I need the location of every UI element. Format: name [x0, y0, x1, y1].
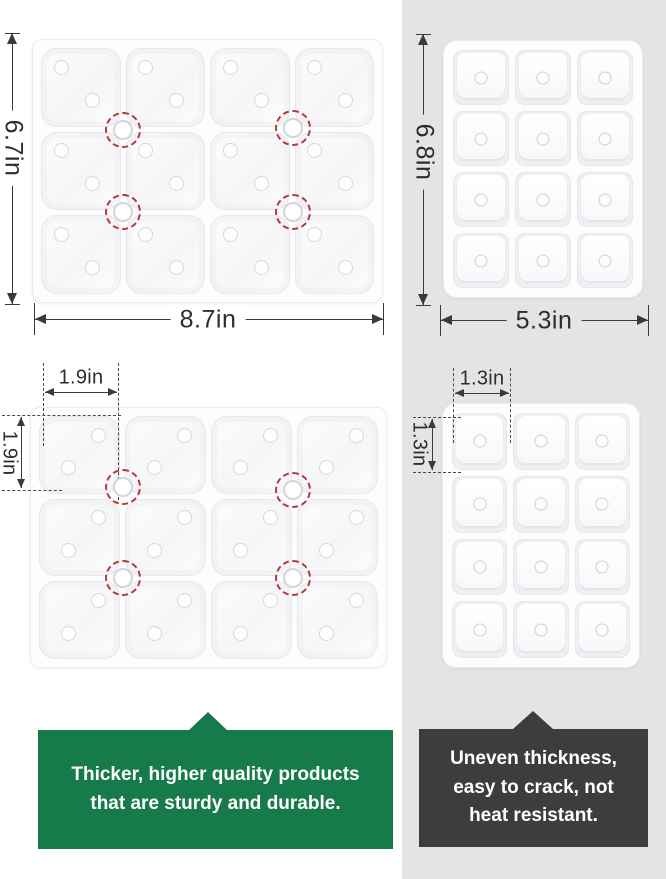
drain-hole-icon [596, 560, 609, 573]
tray-compartment [211, 581, 292, 659]
arrow-up-icon [7, 33, 17, 44]
bad-callout: Uneven thickness, easy to crack, not hea… [419, 729, 648, 847]
drain-hole-icon [254, 93, 269, 108]
tray-compartment [513, 601, 568, 658]
small-tray-bottom [442, 403, 640, 668]
small-tray-height-label: 6.8in [410, 115, 439, 190]
drain-hole-icon [599, 132, 612, 145]
drain-hole-icon [473, 560, 486, 573]
drain-hole-icon [319, 543, 334, 558]
bad-callout-text-line: easy to crack, not [453, 774, 614, 803]
drain-hole-icon [263, 593, 278, 608]
large-cell-width-label: 1.9in [59, 367, 104, 390]
drain-hole-icon [223, 143, 238, 158]
tray-compartment [513, 413, 568, 470]
small-tray-grid [442, 403, 640, 668]
drain-hole-icon [599, 71, 612, 84]
arrow-left-icon [45, 388, 54, 396]
arrow-up-icon [17, 417, 25, 426]
product-comparison-infographic: 6.7in 8.7in 6.8in 5.3in [0, 0, 666, 879]
drain-hole-icon [349, 428, 364, 443]
drain-hole-icon [54, 227, 69, 242]
drain-hole-icon [254, 176, 269, 191]
drain-hole-icon [596, 623, 609, 636]
arrow-down-icon [7, 293, 17, 304]
highlight-ring-icon [275, 560, 311, 596]
tray-compartment [577, 111, 633, 166]
tray-compartment [452, 476, 507, 533]
drain-hole-icon [319, 460, 334, 475]
drain-hole-icon [349, 593, 364, 608]
tray-compartment [453, 172, 509, 227]
tray-compartment [577, 50, 633, 105]
tray-compartment [297, 499, 378, 577]
small-tray-grid [443, 40, 643, 298]
drain-hole-icon [147, 543, 162, 558]
tray-compartment [453, 233, 509, 288]
large-tray-height-label: 6.7in [0, 111, 28, 186]
drain-hole-icon [61, 626, 76, 641]
drain-hole-icon [475, 71, 488, 84]
drain-hole-icon [307, 60, 322, 75]
tray-compartment [126, 132, 206, 211]
drain-hole-icon [473, 435, 486, 448]
drain-hole-icon [534, 498, 547, 511]
highlight-ring-icon [105, 112, 141, 148]
drain-hole-icon [307, 227, 322, 242]
drain-hole-icon [54, 60, 69, 75]
drain-hole-icon [169, 176, 184, 191]
tray-compartment [515, 172, 571, 227]
callout-pointer-icon [513, 711, 553, 729]
drain-hole-icon [54, 143, 69, 158]
good-callout-text-line: that are sturdy and durable. [90, 790, 340, 819]
drain-hole-icon [534, 623, 547, 636]
small-tray-top [443, 40, 643, 298]
tray-compartment [297, 581, 378, 659]
drain-hole-icon [223, 60, 238, 75]
drain-hole-icon [147, 460, 162, 475]
drain-hole-icon [599, 193, 612, 206]
tray-compartment [453, 111, 509, 166]
arrow-up-icon [418, 34, 428, 45]
drain-hole-icon [147, 626, 162, 641]
drain-hole-icon [85, 260, 100, 275]
arrow-right-icon [108, 388, 117, 396]
tray-compartment [126, 215, 206, 294]
drain-hole-icon [338, 176, 353, 191]
tray-compartment [575, 539, 630, 596]
highlight-ring-icon [105, 469, 141, 505]
drain-hole-icon [177, 510, 192, 525]
tray-compartment [513, 476, 568, 533]
drain-hole-icon [263, 510, 278, 525]
small-cell-width-label: 1.3in [460, 368, 505, 391]
tray-compartment [515, 233, 571, 288]
tray-compartment [210, 215, 290, 294]
tray-compartment [515, 50, 571, 105]
small-tray-width-label: 5.3in [507, 307, 582, 336]
tray-compartment [295, 48, 375, 127]
drain-hole-icon [537, 132, 550, 145]
tray-compartment [41, 215, 121, 294]
drain-hole-icon [91, 428, 106, 443]
tray-compartment [39, 499, 120, 577]
arrow-left-icon [35, 314, 46, 324]
large-tray-top [32, 39, 383, 303]
drain-hole-icon [338, 260, 353, 275]
tray-compartment [41, 48, 121, 127]
tray-compartment [295, 132, 375, 211]
drain-hole-icon [91, 510, 106, 525]
tray-compartment [452, 601, 507, 658]
drain-hole-icon [537, 71, 550, 84]
drain-hole-icon [233, 460, 248, 475]
large-tray-bottom [30, 407, 387, 668]
drain-hole-icon [596, 498, 609, 511]
good-callout: Thicker, higher quality products that ar… [38, 730, 393, 849]
tray-compartment [577, 172, 633, 227]
tray-compartment [41, 132, 121, 211]
drain-hole-icon [138, 227, 153, 242]
drain-hole-icon [91, 593, 106, 608]
small-cell-height-label: 1.3in [408, 422, 431, 467]
tray-compartment [575, 601, 630, 658]
tray-compartment [513, 539, 568, 596]
drain-hole-icon [473, 498, 486, 511]
arrow-down-icon [17, 479, 25, 488]
tray-compartment [575, 476, 630, 533]
drain-hole-icon [169, 260, 184, 275]
large-tray-grid [32, 39, 383, 303]
highlight-ring-icon [275, 194, 311, 230]
large-cell-height-label: 1.9in [0, 431, 21, 476]
tray-compartment [125, 499, 206, 577]
highlight-ring-icon [275, 472, 311, 508]
tray-compartment [125, 581, 206, 659]
good-callout-text-line: Thicker, higher quality products [71, 761, 359, 790]
tray-compartment [453, 50, 509, 105]
drain-hole-icon [338, 93, 353, 108]
drain-hole-icon [138, 60, 153, 75]
drain-hole-icon [319, 626, 334, 641]
tray-compartment [126, 48, 206, 127]
tray-compartment [575, 413, 630, 470]
drain-hole-icon [85, 93, 100, 108]
drain-hole-icon [233, 543, 248, 558]
highlight-ring-icon [105, 560, 141, 596]
bad-callout-text-line: heat resistant. [469, 802, 598, 831]
highlight-ring-icon [105, 194, 141, 230]
drain-hole-icon [475, 193, 488, 206]
tray-compartment [452, 413, 507, 470]
drain-hole-icon [138, 143, 153, 158]
drain-hole-icon [537, 193, 550, 206]
drain-hole-icon [169, 93, 184, 108]
tray-compartment [577, 233, 633, 288]
drain-hole-icon [263, 428, 278, 443]
drain-hole-icon [223, 227, 238, 242]
large-tray-grid [30, 407, 387, 668]
drain-hole-icon [349, 510, 364, 525]
drain-hole-icon [61, 543, 76, 558]
drain-hole-icon [599, 254, 612, 267]
arrow-down-icon [418, 294, 428, 305]
tray-compartment [210, 48, 290, 127]
tray-compartment [515, 111, 571, 166]
drain-hole-icon [475, 254, 488, 267]
drain-hole-icon [177, 428, 192, 443]
callout-pointer-icon [188, 712, 228, 731]
drain-hole-icon [473, 623, 486, 636]
arrow-left-icon [441, 315, 452, 325]
drain-hole-icon [596, 435, 609, 448]
drain-hole-icon [475, 132, 488, 145]
drain-hole-icon [534, 560, 547, 573]
drain-hole-icon [537, 254, 550, 267]
drain-hole-icon [307, 143, 322, 158]
drain-hole-icon [534, 435, 547, 448]
drain-hole-icon [254, 260, 269, 275]
drain-hole-icon [177, 593, 192, 608]
highlight-ring-icon [275, 110, 311, 146]
bad-callout-text-line: Uneven thickness, [450, 745, 617, 774]
drain-hole-icon [61, 460, 76, 475]
large-tray-width-label: 8.7in [171, 306, 246, 335]
drain-hole-icon [233, 626, 248, 641]
tray-compartment [210, 132, 290, 211]
arrow-right-icon [637, 315, 648, 325]
tray-compartment [452, 539, 507, 596]
arrow-right-icon [372, 314, 383, 324]
tray-compartment [295, 215, 375, 294]
drain-hole-icon [85, 176, 100, 191]
tray-compartment [39, 581, 120, 659]
